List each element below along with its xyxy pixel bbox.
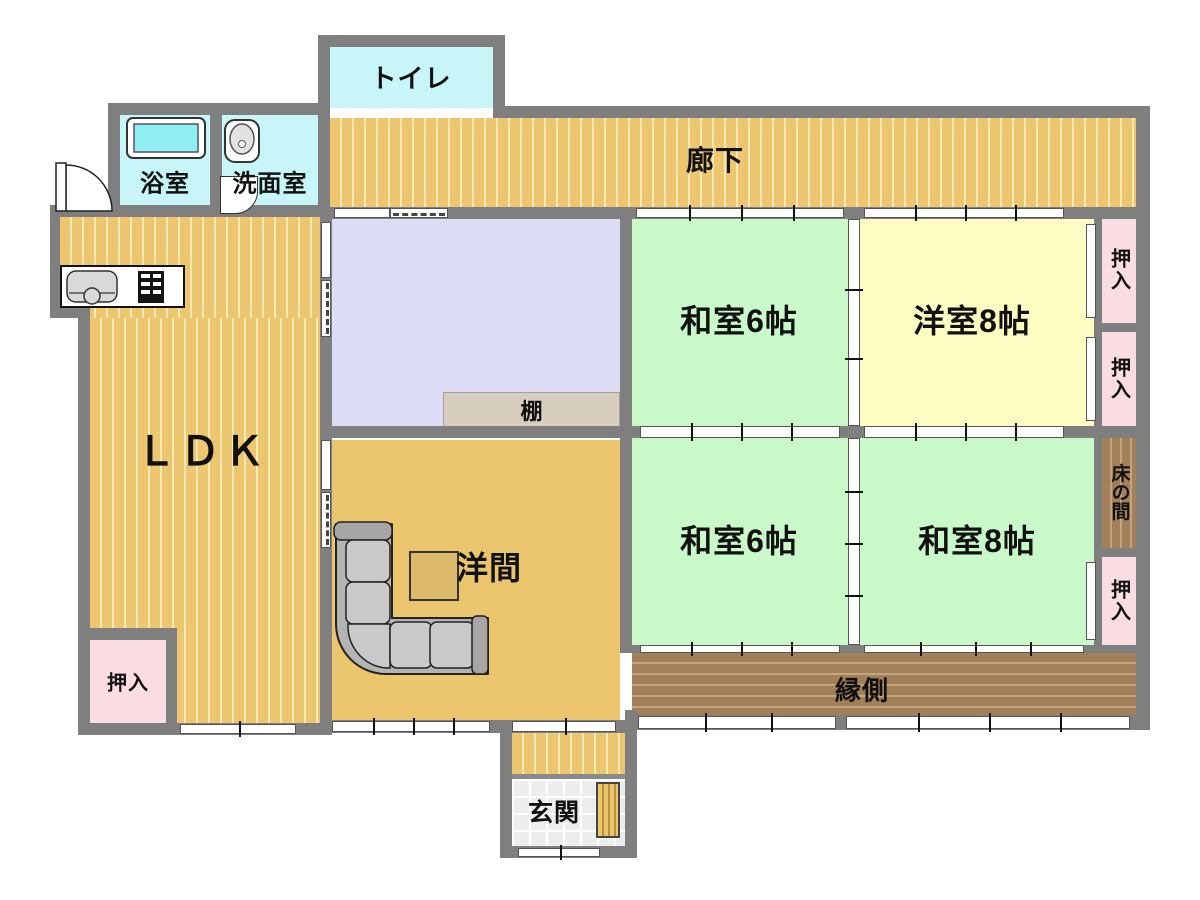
panel-tick xyxy=(453,718,455,735)
door-opening xyxy=(640,645,840,653)
panel-tick xyxy=(1030,642,1032,656)
door-opening xyxy=(846,716,1130,729)
label-genkan: 玄関 xyxy=(528,793,580,829)
panel-tick xyxy=(989,713,991,732)
label-corridor: 廊下 xyxy=(686,139,744,179)
bathtub-icon xyxy=(126,117,206,159)
panel-tick xyxy=(920,642,922,656)
door-opening xyxy=(518,848,600,857)
panel-tick xyxy=(965,423,967,441)
label-closet-right-2: 押入 xyxy=(1105,357,1134,401)
wall xyxy=(505,106,1150,118)
door-opening xyxy=(848,438,860,645)
door-opening xyxy=(1086,337,1096,421)
door-opening xyxy=(1086,562,1096,640)
label-japanese8: 和室8帖 xyxy=(918,516,1036,562)
wall xyxy=(318,35,505,47)
label-closet-right-1: 押入 xyxy=(1105,248,1134,292)
panel-tick xyxy=(771,713,773,732)
genkan-hall xyxy=(512,733,625,774)
label-tokonoma: 床の間 xyxy=(1106,464,1133,521)
panel-tick xyxy=(741,642,743,656)
panel-tick xyxy=(915,205,917,221)
label-japanese6-lower: 和室6帖 xyxy=(680,516,798,562)
label-toilet: トイレ xyxy=(370,59,451,96)
label-washroom: 洗面室 xyxy=(233,164,308,199)
accordion-door xyxy=(321,280,331,337)
accordion-door xyxy=(390,208,448,218)
panel-tick xyxy=(413,718,415,735)
panel-tick xyxy=(845,543,863,545)
label-western-room: 洋間 xyxy=(456,543,522,589)
panel-tick xyxy=(845,289,863,291)
label-ldk: ＬＤＫ xyxy=(136,419,268,477)
door-opening xyxy=(1086,224,1096,318)
door-opening xyxy=(636,208,844,218)
panel-tick xyxy=(741,205,743,221)
panel-tick xyxy=(705,713,707,732)
wall xyxy=(166,628,177,735)
wall xyxy=(78,628,177,640)
door-opening xyxy=(180,724,296,734)
wall xyxy=(493,35,505,118)
panel-tick xyxy=(791,423,793,441)
panel-tick xyxy=(845,595,863,597)
label-japanese6-upper: 和室6帖 xyxy=(680,296,798,342)
wall xyxy=(500,726,512,858)
wall xyxy=(625,710,637,858)
door-opening xyxy=(864,645,1084,653)
panel-tick xyxy=(239,721,241,737)
label-bath: 浴室 xyxy=(140,164,190,199)
panel-tick xyxy=(793,205,795,221)
panel-tick xyxy=(560,845,562,860)
door-opening xyxy=(321,222,331,278)
kitchen-counter-icon xyxy=(60,265,185,308)
panel-tick xyxy=(845,491,863,493)
panel-tick xyxy=(1015,423,1017,441)
wall xyxy=(78,306,90,735)
panel-tick xyxy=(565,718,567,735)
sofa-and-table-icon xyxy=(330,515,492,680)
label-shelf: 棚 xyxy=(520,394,543,426)
panel-tick xyxy=(915,423,917,441)
entry-door-arc-icon xyxy=(52,160,116,216)
panel-tick xyxy=(791,642,793,656)
door-opening xyxy=(864,426,1064,438)
label-engawa: 縁側 xyxy=(835,671,889,708)
label-western8: 洋室8帖 xyxy=(913,296,1031,342)
label-closet-right-3: 押入 xyxy=(1105,579,1134,623)
door-opening xyxy=(334,208,390,218)
door-opening xyxy=(332,721,490,732)
panel-tick xyxy=(373,718,375,735)
panel-tick xyxy=(965,205,967,221)
wall xyxy=(108,103,330,115)
wall xyxy=(50,205,60,318)
wall xyxy=(318,35,330,217)
panel-tick xyxy=(1015,205,1017,221)
panel-tick xyxy=(975,642,977,656)
label-closet-ldk: 押入 xyxy=(107,667,149,696)
wall xyxy=(1102,323,1136,332)
panel-tick xyxy=(845,358,863,360)
panel-tick xyxy=(918,713,920,732)
wall xyxy=(320,426,634,438)
door-opening xyxy=(864,208,1064,218)
floor-plan: トイレ 浴室 洗面室 廊下 ＬＤＫ 棚 洋間 和室6帖 洋室8帖 和室6帖 和室… xyxy=(0,0,1200,900)
wall xyxy=(1136,106,1150,730)
door-opening xyxy=(638,716,836,729)
panel-tick xyxy=(741,423,743,441)
wall xyxy=(512,774,625,779)
door-opening xyxy=(321,440,331,490)
panel-tick xyxy=(1060,713,1062,732)
door-opening xyxy=(640,426,840,438)
wall xyxy=(1098,548,1136,557)
washbasin-icon xyxy=(224,119,260,163)
panel-tick xyxy=(691,423,693,441)
door-opening xyxy=(512,721,616,732)
panel-tick xyxy=(689,205,691,221)
genkan-step-mat xyxy=(596,782,620,838)
panel-tick xyxy=(691,642,693,656)
door-opening xyxy=(848,219,860,426)
